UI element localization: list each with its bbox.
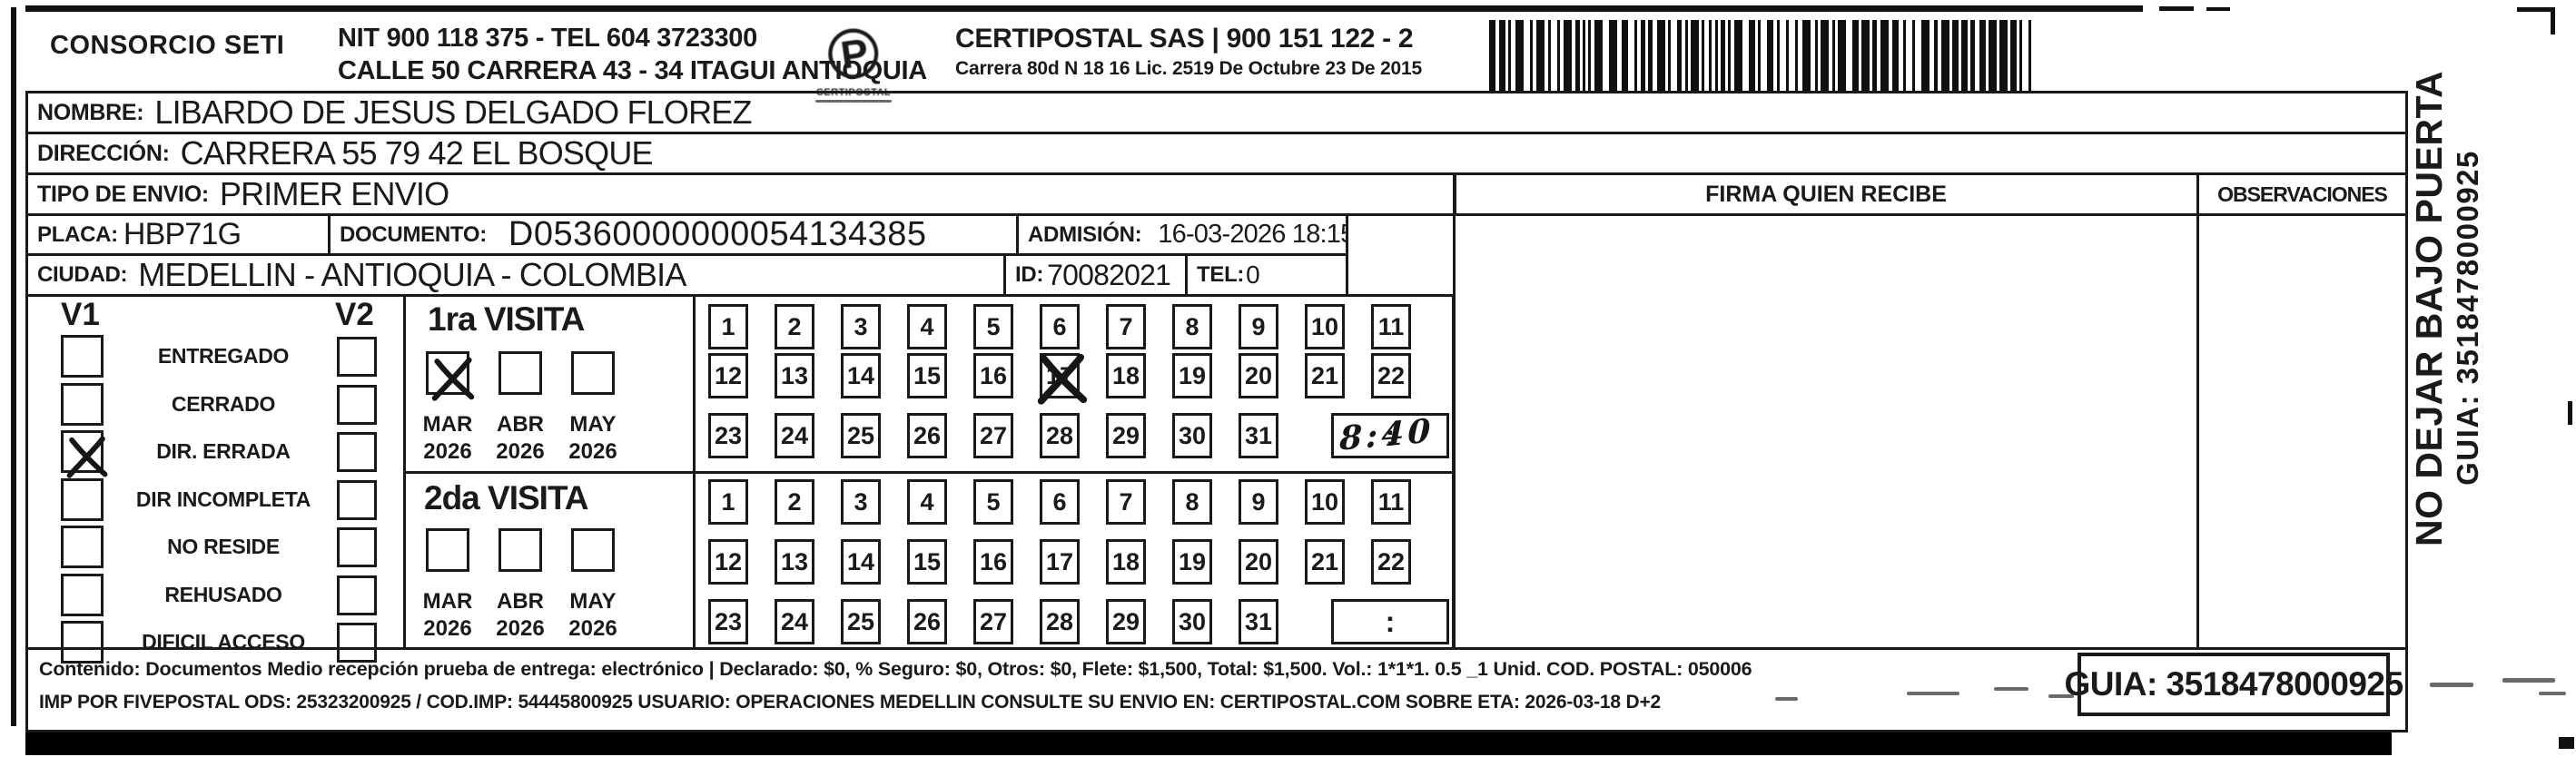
tipo-envio-label: TIPO DE ENVIO: (37, 182, 209, 208)
barcode-bar (1961, 20, 1968, 93)
status-row: CERRADO (28, 383, 403, 430)
first-visit-day-11[interactable]: 11 (1371, 304, 1411, 349)
first-visit-panel: 1ra VISITA MAR2026ABR2026MAY2026 (403, 294, 696, 474)
first-visit-day-23[interactable]: 23 (708, 413, 748, 458)
id-cell: ID: 70082021 (1003, 253, 1188, 297)
v1-checkbox-cerrado[interactable] (61, 383, 104, 426)
first-visit-day-30[interactable]: 30 (1172, 413, 1212, 458)
documento-label: DOCUMENTO: (340, 222, 487, 248)
second-visit-day-24[interactable]: 24 (775, 599, 814, 644)
first-visit-title: 1ra VISITA (428, 300, 584, 339)
v1-checkbox-entregado[interactable] (61, 335, 104, 378)
v2-checkbox-rehusado[interactable] (337, 575, 377, 615)
scan-smudge (2502, 678, 2555, 683)
placa-value: HBP71G (123, 217, 241, 252)
barcode-bar (1832, 20, 1835, 93)
id-label: ID: (1015, 262, 1043, 288)
day-number: 18 (1112, 362, 1140, 390)
direccion-row: DIRECCIÓN: CARRERA 55 79 42 EL BOSQUE (25, 132, 2408, 175)
tipo-envio-value: PRIMER ENVIO (220, 175, 449, 213)
second-visit-day-19[interactable]: 19 (1172, 539, 1212, 585)
scan-top-dash (2159, 6, 2194, 11)
provider-address: Carrera 80d N 18 16 Lic. 2519 De Octubre… (955, 58, 1422, 80)
first-visit-day-16[interactable]: 16 (973, 353, 1013, 398)
second-visit-day-31[interactable]: 31 (1239, 599, 1278, 644)
day-number: 10 (1311, 488, 1338, 516)
barcode-bar (1575, 20, 1580, 93)
firma-signature-area (1453, 213, 2199, 650)
first-visit-day-1[interactable]: 1 (708, 304, 748, 349)
side-note: NO DEJAR BAJO PUERTA GUIA: 3518478000925 (2408, 89, 2504, 546)
v2-checkbox-cerrado[interactable] (337, 385, 377, 425)
first-visit-day-10[interactable]: 10 (1305, 304, 1345, 349)
day-number: 9 (1251, 488, 1265, 516)
placa-label: PLACA: (37, 222, 118, 248)
day-number: 4 (920, 313, 933, 341)
day-number: 6 (1052, 488, 1066, 516)
second-visit-day-21[interactable]: 21 (1305, 539, 1345, 585)
observaciones-header-label: OBSERVACIONES (2217, 182, 2387, 207)
scan-bottom-mark (2559, 737, 2574, 749)
second-visit-day-7[interactable]: 7 (1106, 479, 1146, 525)
day-number: 14 (847, 548, 874, 576)
scan-right-tick (2568, 401, 2572, 425)
barcode-bar (1715, 20, 1718, 93)
barcode-bar (1515, 20, 1524, 93)
day-number: 29 (1112, 422, 1140, 450)
first-visit-day-17[interactable]: 17 (1040, 353, 1080, 398)
day-number: 21 (1311, 548, 1338, 576)
day-number: 22 (1377, 362, 1405, 390)
guia-number-label: GUIA: 3518478000925 (2064, 665, 2403, 703)
day-number: 15 (913, 362, 941, 390)
day-number: 29 (1112, 608, 1140, 636)
v1-checkbox-dir-incompleta[interactable] (61, 478, 104, 521)
tel-cell: TEL: 0 (1185, 253, 1348, 297)
barcode-bar (1941, 20, 1949, 93)
placa-cell: PLACA: HBP71G (25, 213, 331, 256)
day-number: 27 (980, 422, 1007, 450)
day-number: 17 (1046, 548, 1073, 576)
first-visit-month-checkbox-may[interactable] (571, 351, 615, 395)
barcode-bar (1758, 20, 1761, 93)
day-number: 7 (1119, 488, 1132, 516)
barcode-bar (1564, 20, 1572, 93)
barcode-bar (1821, 20, 1829, 93)
first-visit-day-31[interactable]: 31 (1239, 413, 1278, 458)
barcode-bar (1634, 20, 1637, 93)
barcode-bar (1786, 20, 1789, 93)
first-visit-day-28[interactable]: 28 (1040, 413, 1080, 458)
first-visit-day-8[interactable]: 8 (1172, 304, 1212, 349)
documento-cell: DOCUMENTO: D05360000000054134385 (328, 213, 1019, 256)
day-number: 4 (920, 488, 933, 516)
status-row: REHUSADO (28, 574, 403, 621)
hand-x-mark (429, 354, 478, 403)
second-visit-day-2[interactable]: 2 (775, 479, 814, 525)
barcode-bar (1999, 20, 2008, 93)
second-visit-day-22[interactable]: 22 (1371, 539, 1411, 585)
day-number: 5 (986, 488, 1000, 516)
tipo-envio-row: TIPO DE ENVIO: PRIMER ENVIO (25, 172, 1456, 216)
day-number: 26 (913, 608, 941, 636)
day-number: 28 (1046, 422, 1073, 450)
scan-top-dash (2206, 7, 2230, 11)
barcode-bar (1702, 20, 1704, 93)
day-number: 11 (1378, 313, 1405, 341)
direccion-value: CARRERA 55 79 42 EL BOSQUE (181, 134, 653, 172)
scan-bottom-bar (25, 730, 2392, 755)
day-number: 22 (1377, 548, 1405, 576)
day-number: 2 (787, 488, 801, 516)
day-number: 25 (847, 608, 874, 636)
documento-value: D05360000000054134385 (508, 215, 927, 254)
day-number: 19 (1179, 548, 1206, 576)
first-visit-day-27[interactable]: 27 (973, 413, 1013, 458)
barcode-bar (1677, 20, 1682, 93)
barcode-bar (1872, 20, 1877, 93)
barcode-bar (1838, 20, 1846, 93)
status-row: NO RESIDE (28, 526, 403, 573)
barcode-bar (1852, 20, 1859, 93)
nombre-row: NOMBRE: LIBARDO DE JESUS DELGADO FLOREZ (25, 91, 2408, 134)
barcode-bar (2010, 20, 2017, 93)
circle-p-icon: ℗ (823, 16, 883, 90)
day-number: 7 (1119, 313, 1132, 341)
first-visit-day-15[interactable]: 15 (907, 353, 947, 398)
second-visit-day-30[interactable]: 30 (1172, 599, 1212, 644)
contenido-line: Contenido: Documentos Medio recepción pr… (39, 658, 1752, 681)
day-number: 3 (854, 488, 867, 516)
hand-x-mark (64, 433, 111, 480)
first-visit-day-6[interactable]: 6 (1040, 304, 1080, 349)
first-visit-day-14[interactable]: 14 (841, 353, 881, 398)
day-number: 12 (715, 548, 742, 576)
first-visit-month-checkbox-mar[interactable] (426, 351, 469, 395)
barcode-bar (1749, 20, 1755, 93)
status-panel: V1 V2 ENTREGADOCERRADODIR. ERRADADIR INC… (25, 294, 406, 650)
barcode-bar (1641, 20, 1645, 93)
barcode-bar (1668, 20, 1671, 93)
day-number: 31 (1245, 608, 1272, 636)
first-visit-day-5[interactable]: 5 (973, 304, 1013, 349)
barcode-bar (1767, 20, 1773, 93)
first-visit-day-3[interactable]: 3 (841, 304, 881, 349)
day-number: 13 (781, 548, 808, 576)
barcode-bar (1921, 20, 1930, 93)
direccion-label: DIRECCIÓN: (37, 141, 170, 167)
firma-header-label: FIRMA QUIEN RECIBE (1705, 182, 1947, 208)
second-visit-day-12[interactable]: 12 (708, 539, 748, 585)
second-visit-day-15[interactable]: 15 (907, 539, 947, 585)
nombre-value: LIBARDO DE JESUS DELGADO FLOREZ (154, 93, 751, 132)
barcode-bar (1815, 20, 1818, 93)
scan-top-line (25, 5, 2143, 12)
v2-column-label: V2 (335, 297, 374, 333)
first-visit-time-cell[interactable]: :8:40 (1331, 413, 1449, 458)
v2-checkbox-entregado[interactable] (337, 337, 377, 377)
handwritten-time: 8:40 (1339, 411, 1435, 457)
first-visit-day-9[interactable]: 9 (1239, 304, 1278, 349)
ciudad-cell: CIUDAD: MEDELLIN - ANTIOQUIA - COLOMBIA (25, 253, 1006, 297)
v2-checkbox-dir-incompleta[interactable] (337, 480, 377, 520)
first-visit-year-label: 2026 (549, 438, 637, 466)
first-visit-day-20[interactable]: 20 (1239, 353, 1278, 398)
first-visit-day-29[interactable]: 29 (1106, 413, 1146, 458)
day-number: 16 (980, 362, 1007, 390)
day-number: 24 (781, 422, 808, 450)
day-number: 20 (1245, 548, 1272, 576)
scan-left-line (11, 7, 16, 726)
barcode-bar (1536, 20, 1545, 93)
status-row: DIR. ERRADA (28, 430, 403, 477)
company-nit-line: NIT 900 118 375 - TEL 604 3723300 (338, 24, 757, 54)
barcode-bar (1609, 20, 1617, 93)
observaciones-area (2196, 213, 2408, 650)
day-number: 3 (854, 313, 867, 341)
barcode-bar (1979, 20, 1986, 93)
day-number: 8 (1185, 488, 1199, 516)
second-visit-title: 2da VISITA (424, 479, 588, 517)
ciudad-label: CIUDAD: (37, 262, 127, 288)
status-option-label: DIR INCOMPLETA (112, 487, 335, 512)
status-row: DIR INCOMPLETA (28, 478, 403, 526)
second-visit-day-14[interactable]: 14 (841, 539, 881, 585)
first-visit-day-19[interactable]: 19 (1172, 353, 1212, 398)
day-number: 5 (986, 313, 1000, 341)
day-number: 11 (1378, 488, 1405, 516)
day-number: 12 (715, 362, 742, 390)
day-number: 26 (913, 422, 941, 450)
day-number: 8 (1185, 313, 1199, 341)
admision-value: 16-03-2026 18:15:01 (1158, 220, 1348, 250)
first-visit-day-4[interactable]: 4 (907, 304, 947, 349)
second-visit-year-label: 2026 (549, 615, 637, 643)
barcode-bar (1685, 20, 1688, 93)
scan-corner-mark (2551, 7, 2555, 34)
certipostal-logo-icon: ℗ (820, 20, 887, 87)
first-visit-day-7[interactable]: 7 (1106, 304, 1146, 349)
barcode-bar (1594, 20, 1603, 93)
first-visit-day-21[interactable]: 21 (1305, 353, 1345, 398)
barcode-bar (1952, 20, 1959, 93)
second-visit-day-9[interactable]: 9 (1239, 479, 1278, 525)
second-visit-time-cell[interactable]: : (1331, 599, 1449, 644)
second-visit-day-3[interactable]: 3 (841, 479, 881, 525)
status-row: ENTREGADO (28, 335, 403, 382)
v1-checkbox-rehusado[interactable] (61, 574, 104, 616)
barcode-bar (1777, 20, 1780, 93)
barcode-bar (1548, 20, 1551, 93)
second-visit-day-13[interactable]: 13 (775, 539, 814, 585)
second-visit-day-23[interactable]: 23 (708, 599, 748, 644)
second-visit-day-11[interactable]: 11 (1371, 479, 1411, 525)
admision-label: ADMISIÓN: (1028, 222, 1141, 248)
barcode-bar (1530, 20, 1533, 93)
day-number: 1 (721, 488, 735, 516)
day-number: 30 (1179, 608, 1206, 636)
admision-cell: ADMISIÓN: 16-03-2026 18:15:01 (1016, 213, 1348, 256)
status-option-label: NO RESIDE (112, 535, 335, 559)
barcode-bar (1588, 20, 1591, 93)
second-visit-day-25[interactable]: 25 (841, 599, 881, 644)
barcode-bar (1721, 20, 1725, 93)
first-visit-day-22[interactable]: 22 (1371, 353, 1411, 398)
day-number: 27 (980, 608, 1007, 636)
v1-column-label: V1 (61, 297, 100, 333)
barcode-bar (1892, 20, 1899, 93)
provider-line: CERTIPOSTAL SAS | 900 151 122 - 2 (955, 24, 1413, 54)
ciudad-value: MEDELLIN - ANTIOQUIA - COLOMBIA (138, 256, 686, 294)
barcode-bar (1903, 20, 1906, 93)
day-number: 1 (721, 313, 735, 341)
barcode-bar (1802, 20, 1811, 93)
barcode-bar (1489, 20, 1495, 93)
v1-checkbox-no-reside[interactable] (61, 526, 104, 568)
day-number: 13 (781, 362, 808, 390)
barcode-bar (1989, 20, 1997, 93)
first-visit-day-26[interactable]: 26 (907, 413, 947, 458)
day-number: 9 (1251, 313, 1265, 341)
barcode-bar (1880, 20, 1889, 93)
observaciones-header: OBSERVACIONES (2196, 172, 2408, 216)
barcode-bar (1728, 20, 1731, 93)
waybill-page: CONSORCIO SETI NIT 900 118 375 - TEL 604… (0, 0, 2576, 757)
barcode-bar (1657, 20, 1665, 93)
day-number: 23 (715, 608, 742, 636)
barcode-bar (1970, 20, 1975, 93)
barcode-bar (1691, 20, 1699, 93)
imp-line: IMP POR FIVEPOSTAL ODS: 25323200925 / CO… (39, 692, 1661, 713)
second-visit-month-label: MAY (549, 588, 637, 615)
scan-smudge (2430, 683, 2473, 687)
firma-header: FIRMA QUIEN RECIBE (1453, 172, 2199, 216)
second-visit-day-20[interactable]: 20 (1239, 539, 1278, 585)
barcode-bar (2019, 20, 2022, 93)
tel-label: TEL: (1197, 262, 1244, 288)
day-number: 19 (1179, 362, 1206, 390)
second-visit-day-16[interactable]: 16 (973, 539, 1013, 585)
barcode-bar (1861, 20, 1870, 93)
day-number: 2 (787, 313, 801, 341)
first-visit-day-12[interactable]: 12 (708, 353, 748, 398)
second-visit-month-checkbox-mar[interactable] (426, 528, 469, 572)
day-number: 16 (980, 548, 1007, 576)
barcode-bar (1499, 20, 1505, 93)
barcode-bar (1709, 20, 1712, 93)
day-number: 10 (1311, 313, 1338, 341)
side-guia-number: GUIA: 3518478000925 (2451, 89, 2485, 546)
company-name: CONSORCIO SETI (50, 31, 284, 61)
id-value: 70082021 (1047, 259, 1170, 292)
second-visit-day-8[interactable]: 8 (1172, 479, 1212, 525)
footer-section: Contenido: Documentos Medio recepción pr… (25, 647, 2408, 732)
second-visit-day-10[interactable]: 10 (1305, 479, 1345, 525)
first-visit-day-24[interactable]: 24 (775, 413, 814, 458)
barcode-bar (1648, 20, 1653, 93)
first-visit-day-18[interactable]: 18 (1106, 353, 1146, 398)
second-visit-day-4[interactable]: 4 (907, 479, 947, 525)
second-visit-panel: 2da VISITA MAR2026ABR2026MAY2026 (403, 471, 696, 650)
day-number: 17 (1046, 362, 1073, 390)
day-number: 14 (847, 362, 874, 390)
day-number: 24 (781, 608, 808, 636)
guia-number-box: GUIA: 3518478000925 (2078, 653, 2390, 716)
scan-smudge (2539, 692, 2566, 695)
status-option-label: ENTREGADO (112, 344, 335, 369)
barcode-bar (2028, 20, 2031, 93)
first-visit-month-label: MAY (549, 411, 637, 438)
barcode-bar (1583, 20, 1585, 93)
second-visit-day-18[interactable]: 18 (1106, 539, 1146, 585)
day-number: 28 (1046, 608, 1073, 636)
second-visit-day-6[interactable]: 6 (1040, 479, 1080, 525)
day-number: 31 (1245, 422, 1272, 450)
first-visit-day-13[interactable]: 13 (775, 353, 814, 398)
second-visit-day-28[interactable]: 28 (1040, 599, 1080, 644)
barcode-bar (1934, 20, 1938, 93)
barcode-bar (1508, 20, 1511, 93)
day-number: 21 (1311, 362, 1338, 390)
first-visit-month-checkbox-abr[interactable] (498, 351, 542, 395)
v2-checkbox-dir-errada[interactable] (337, 432, 377, 472)
tel-value: 0 (1246, 261, 1259, 290)
second-visit-day-grid: 1234567891011121314151617181920212223242… (693, 471, 1455, 650)
second-visit-day-29[interactable]: 29 (1106, 599, 1146, 644)
day-number: 23 (715, 422, 742, 450)
day-number: 18 (1112, 548, 1140, 576)
first-visit-day-grid: 1234567891011121314151617181920212223242… (693, 294, 1455, 474)
v1-checkbox-dir-errada[interactable] (61, 430, 104, 473)
second-visit-day-27[interactable]: 27 (973, 599, 1013, 644)
first-visit-day-25[interactable]: 25 (841, 413, 881, 458)
day-number: 15 (913, 548, 941, 576)
nombre-label: NOMBRE: (37, 100, 143, 126)
barcode-bar (1734, 20, 1742, 93)
day-number: 6 (1052, 313, 1066, 341)
barcode-bar (1557, 20, 1560, 93)
status-option-label: DIR. ERRADA (112, 439, 335, 464)
second-visit-day-17[interactable]: 17 (1040, 539, 1080, 585)
first-visit-day-2[interactable]: 2 (775, 304, 814, 349)
status-option-label: REHUSADO (112, 583, 335, 607)
day-number: 30 (1179, 422, 1206, 450)
second-visit-day-1[interactable]: 1 (708, 479, 748, 525)
barcode-bar (1912, 20, 1915, 93)
time-separator: : (1386, 605, 1396, 639)
barcode-bar (1622, 20, 1628, 93)
barcode-bar (1795, 20, 1798, 93)
second-visit-month-checkbox-may[interactable] (571, 528, 615, 572)
day-number: 25 (847, 422, 874, 450)
barcode (1489, 20, 2041, 93)
no-dejar-bajo-puerta-note: NO DEJAR BAJO PUERTA (2408, 89, 2451, 546)
scan-corner-mark (2517, 7, 2555, 12)
day-number: 20 (1245, 362, 1272, 390)
v2-checkbox-no-reside[interactable] (337, 527, 377, 567)
second-visit-day-5[interactable]: 5 (973, 479, 1013, 525)
second-visit-month-checkbox-abr[interactable] (498, 528, 542, 572)
second-visit-day-26[interactable]: 26 (907, 599, 947, 644)
status-option-label: CERRADO (112, 392, 335, 417)
